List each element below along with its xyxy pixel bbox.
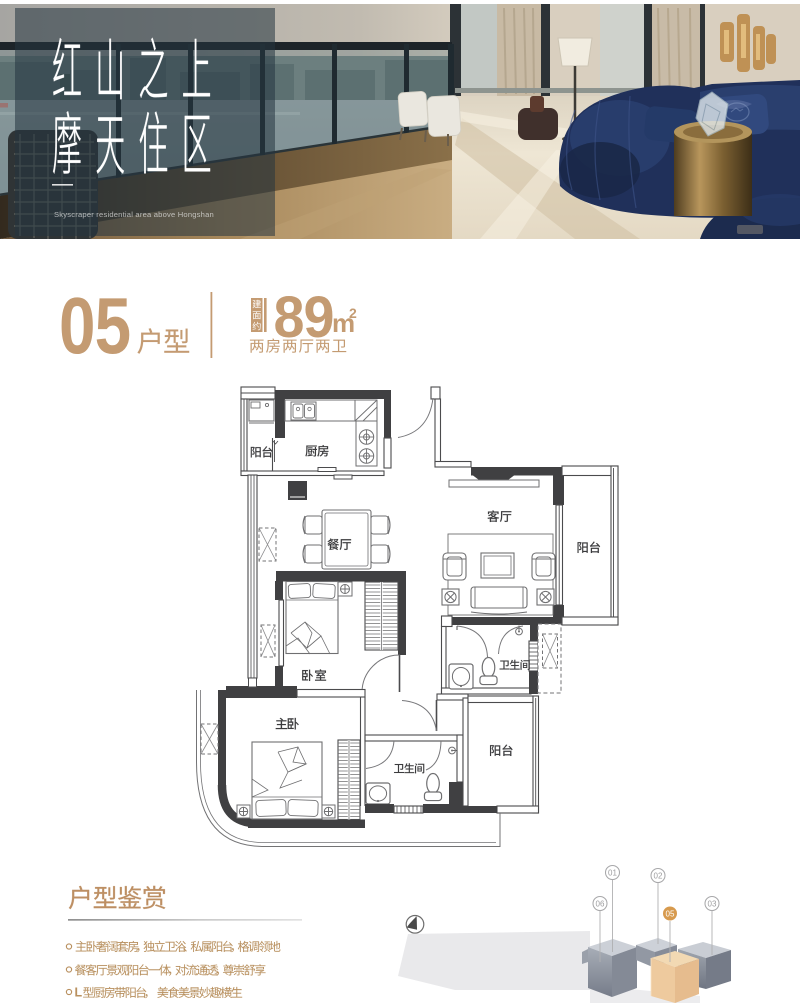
svg-text:L: L [75, 986, 83, 1000]
svg-text:05: 05 [666, 910, 675, 919]
svg-text:2: 2 [349, 305, 357, 321]
svg-text:03: 03 [708, 900, 717, 909]
svg-text:02: 02 [654, 872, 663, 881]
svg-text:05: 05 [59, 281, 130, 371]
svg-text:Skyscraper residential area ab: Skyscraper residential area above Hongsh… [54, 210, 214, 219]
svg-text:01: 01 [608, 869, 617, 878]
svg-text:06: 06 [596, 900, 605, 909]
